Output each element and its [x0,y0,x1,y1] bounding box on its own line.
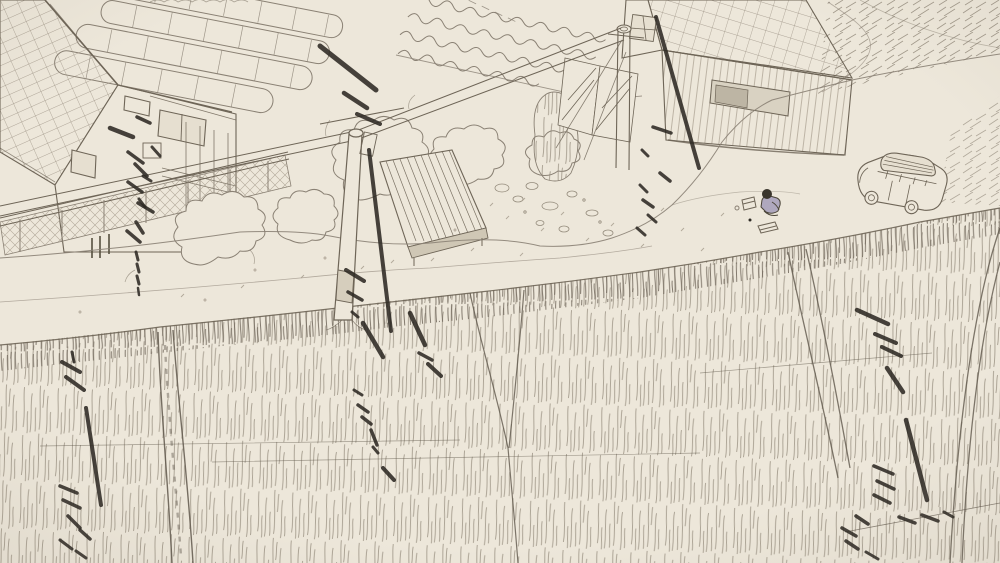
sketch-scene [0,0,1000,563]
vignette-overlay [0,0,1000,563]
game-viewport [0,0,1000,563]
